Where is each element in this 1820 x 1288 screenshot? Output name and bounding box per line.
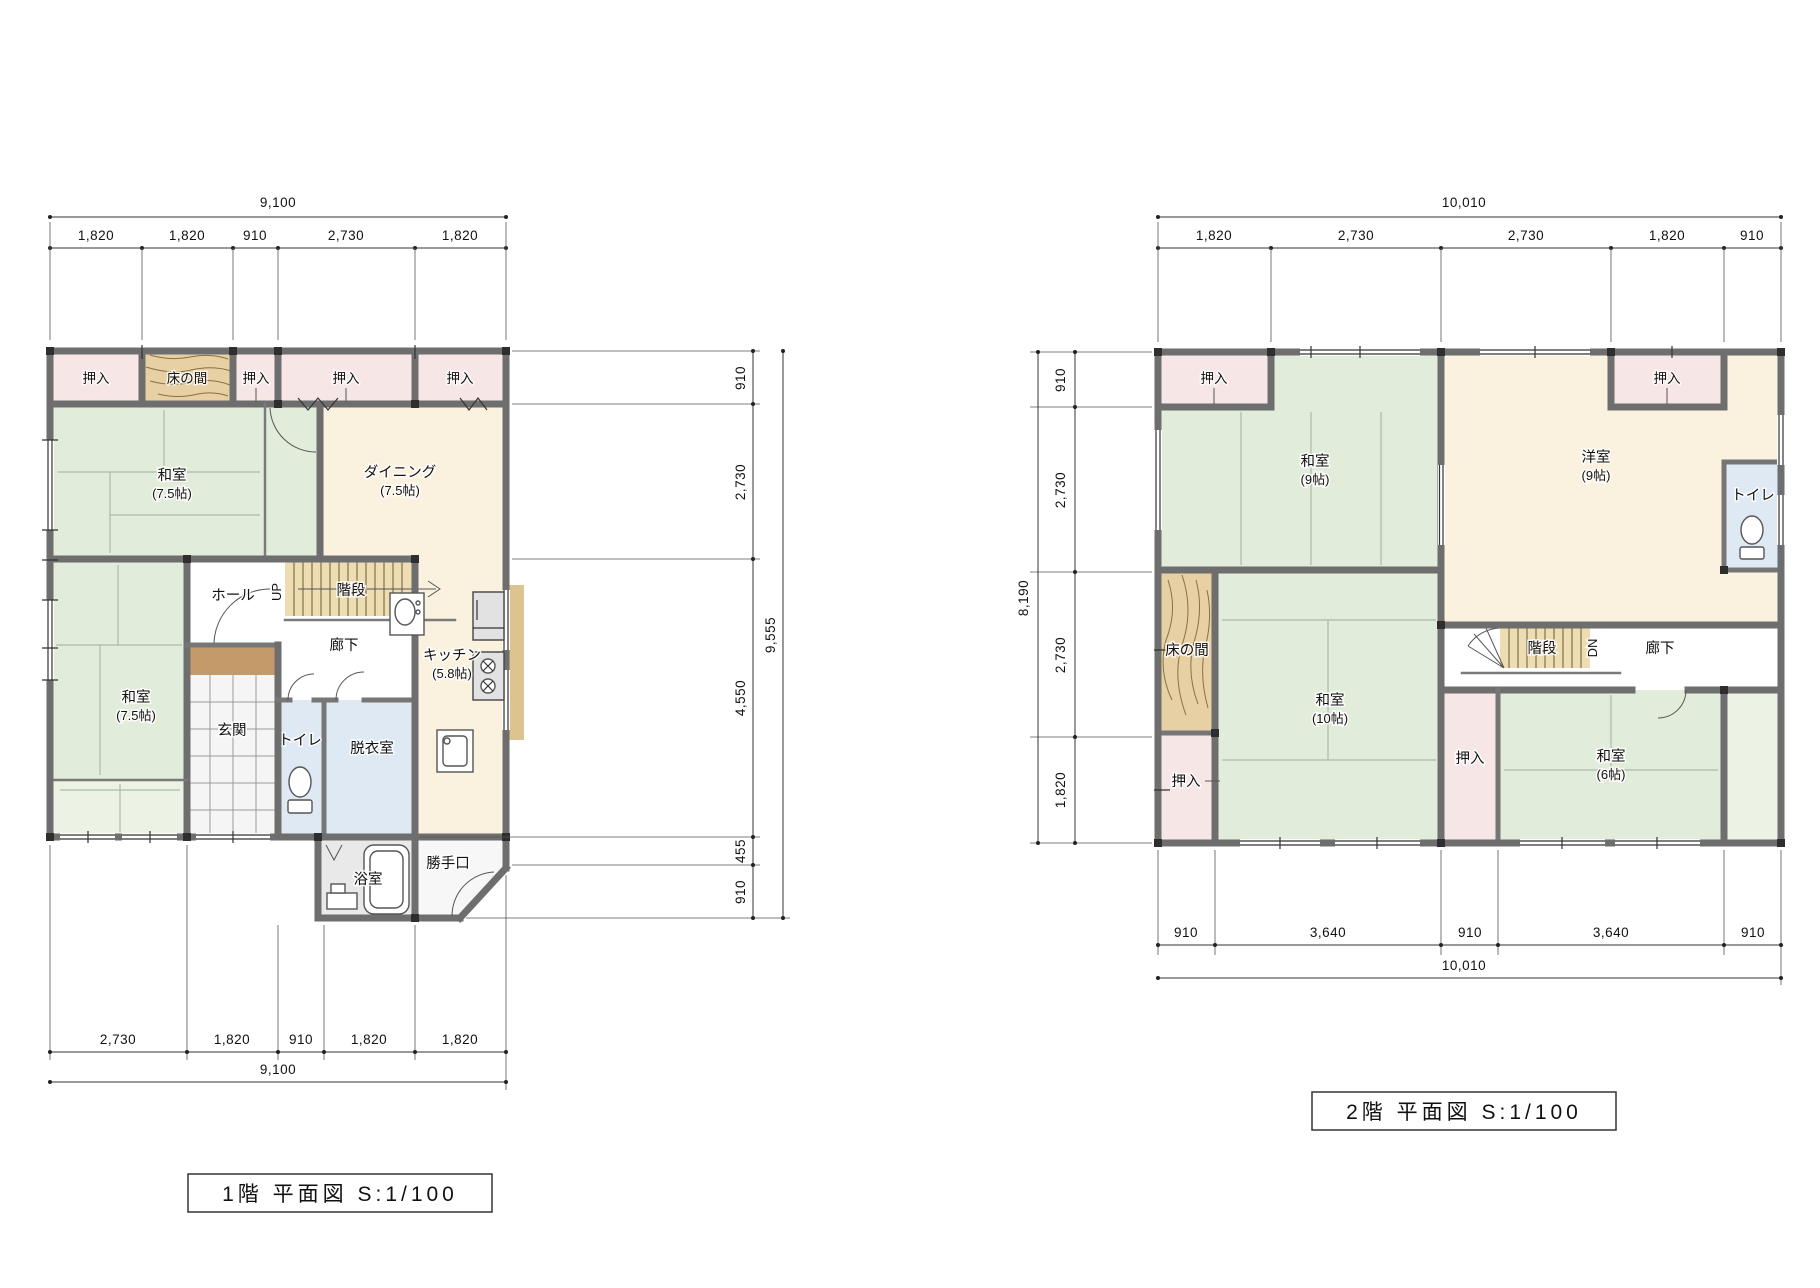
- f1-dim-bottom-5: 1,820: [442, 1032, 478, 1047]
- f2-dim-bottom-3: 910: [1458, 925, 1482, 940]
- f2-dim-left-3: 2,730: [1053, 637, 1068, 673]
- f2-dim-left-4: 1,820: [1053, 772, 1068, 808]
- washitsu-6-size: (6帖): [1597, 767, 1626, 782]
- washitsu-9-size: (9帖): [1301, 472, 1330, 487]
- datsuishitsu-label: 脱衣室: [350, 740, 394, 757]
- floor2-plan: 押入 押入 和室 (9帖) 洋室 (9帖) トイレ 床の間 押入 和室 (10帖…: [1154, 346, 1785, 849]
- f1-dim-top-4: 2,730: [328, 228, 364, 243]
- f2-dim-bottom-1: 910: [1174, 925, 1198, 940]
- closet-label: 押入: [1456, 750, 1485, 767]
- washitsu-b-label: 和室: [122, 689, 151, 706]
- f2-dim-left-1: 910: [1053, 368, 1068, 392]
- genkan-step: [187, 645, 278, 675]
- washbasin-icon-f1: [390, 593, 424, 635]
- floor1-title: 1階 平面図 S:1/100: [188, 1174, 492, 1212]
- closet-label: 押入: [1172, 773, 1201, 790]
- f2-dim-top-2: 2,730: [1338, 228, 1374, 243]
- kitchen-sink-icon: [437, 730, 473, 772]
- rouka-label-f2: 廊下: [1646, 640, 1675, 657]
- f2-dim-top-5: 910: [1740, 228, 1764, 243]
- kaidan-label-f2: 階段: [1528, 640, 1557, 657]
- f2-dim-left-total: 8,190: [1016, 580, 1031, 616]
- kitchen-size: (5.8帖): [432, 666, 472, 681]
- washitsu-a-vestibule: [265, 404, 320, 559]
- closet-label: 押入: [447, 371, 474, 386]
- kitchen-label: キッチン: [423, 648, 481, 664]
- floorplan-drawing: 押入 床の間 押入 押入 押入 和室 (7.5帖) ダイニング (7.5帖) 階…: [0, 0, 1820, 1288]
- toilet-icon-f2: [1740, 516, 1764, 559]
- f2-dim-top-total: 10,010: [1442, 195, 1486, 210]
- closet-label: 押入: [83, 371, 110, 386]
- closet-label: 押入: [243, 371, 270, 386]
- yokushitsu-label: 浴室: [354, 871, 383, 888]
- floorplan-sheet: 押入 床の間 押入 押入 押入 和室 (7.5帖) ダイニング (7.5帖) 階…: [0, 0, 1820, 1288]
- katteguchi-label: 勝手口: [426, 855, 470, 872]
- youshitsu-size: (9帖): [1582, 468, 1611, 483]
- tokonoma-label: 床の間: [167, 371, 208, 386]
- closet-label: 押入: [1201, 371, 1229, 386]
- f1-dim-top-1: 1,820: [78, 228, 114, 243]
- closet-label: 押入: [1654, 371, 1682, 386]
- f1-dim-top-2: 1,820: [169, 228, 205, 243]
- f1-dim-bottom-1: 2,730: [100, 1032, 136, 1047]
- hall-label: ホール: [211, 588, 255, 604]
- veranda-f2: [1724, 690, 1781, 843]
- washitsu-10-size: (10帖): [1312, 711, 1348, 726]
- washitsu-6-label: 和室: [1597, 748, 1626, 765]
- f1-dim-right-4: 455: [733, 839, 748, 863]
- f1-dim-bottom-total: 9,100: [260, 1062, 296, 1077]
- floor1-title-text: 1階 平面図 S:1/100: [222, 1183, 458, 1206]
- rouka-label-f1: 廊下: [330, 637, 359, 654]
- room-datsuishitsu: [324, 700, 415, 837]
- youshitsu-label: 洋室: [1582, 449, 1611, 466]
- floor2-title: 2階 平面図 S:1/100: [1312, 1092, 1616, 1130]
- toilet-label-f2: トイレ: [1731, 488, 1775, 504]
- f2-dim-top-3: 2,730: [1508, 228, 1544, 243]
- kitchen-bay-counter: [508, 585, 524, 740]
- room-dining: [320, 404, 506, 559]
- washitsu-a-label: 和室: [158, 467, 187, 484]
- kaidan-label: 階段: [337, 582, 366, 599]
- f1-dim-right-2: 2,730: [733, 464, 748, 500]
- genkan-label: 玄関: [218, 722, 247, 739]
- tokonoma-label-f2: 床の間: [1165, 642, 1209, 659]
- stairs-up-label: UP: [269, 583, 284, 601]
- f2-dim-bottom-2: 3,640: [1310, 925, 1346, 940]
- f2-dim-bottom-5: 910: [1741, 925, 1765, 940]
- washitsu-10-label: 和室: [1316, 692, 1345, 709]
- f1-dim-top-3: 910: [243, 228, 267, 243]
- f1-dim-top-5: 1,820: [442, 228, 478, 243]
- stairs-dn-label: DN: [1585, 639, 1600, 658]
- f1-dim-bottom-3: 910: [289, 1032, 313, 1047]
- toilet-label-f1: トイレ: [278, 733, 322, 749]
- floor1-plan: 押入 床の間 押入 押入 押入 和室 (7.5帖) ダイニング (7.5帖) 階…: [42, 345, 524, 922]
- floor2-title-text: 2階 平面図 S:1/100: [1346, 1101, 1582, 1124]
- washitsu-9-label: 和室: [1301, 453, 1330, 470]
- f1-dim-bottom-2: 1,820: [214, 1032, 250, 1047]
- f1-dim-right-total: 9,555: [763, 617, 778, 653]
- washitsu-a-size: (7.5帖): [152, 486, 192, 501]
- closet-label: 押入: [333, 371, 360, 386]
- f1-dim-right-1: 910: [733, 366, 748, 390]
- veranda-f1: [50, 780, 187, 837]
- f2-dim-top-1: 1,820: [1196, 228, 1232, 243]
- f2-dim-bottom-4: 3,640: [1593, 925, 1629, 940]
- washitsu-b-size: (7.5帖): [116, 708, 156, 723]
- fridge-icon: [473, 592, 504, 640]
- f1-dim-top-total: 9,100: [260, 195, 296, 210]
- f2-dim-top-4: 1,820: [1649, 228, 1685, 243]
- f1-dim-right-5: 910: [733, 880, 748, 904]
- f2-dim-left-2: 2,730: [1053, 472, 1068, 508]
- dining-size: (7.5帖): [380, 483, 420, 498]
- dining-label: ダイニング: [364, 464, 437, 481]
- f1-dim-bottom-4: 1,820: [351, 1032, 387, 1047]
- toilet-icon-f1: [288, 767, 312, 813]
- room-katteguchi: [415, 837, 506, 918]
- f2-dim-bottom-total: 10,010: [1442, 958, 1486, 973]
- f1-dim-right-3: 4,550: [733, 680, 748, 716]
